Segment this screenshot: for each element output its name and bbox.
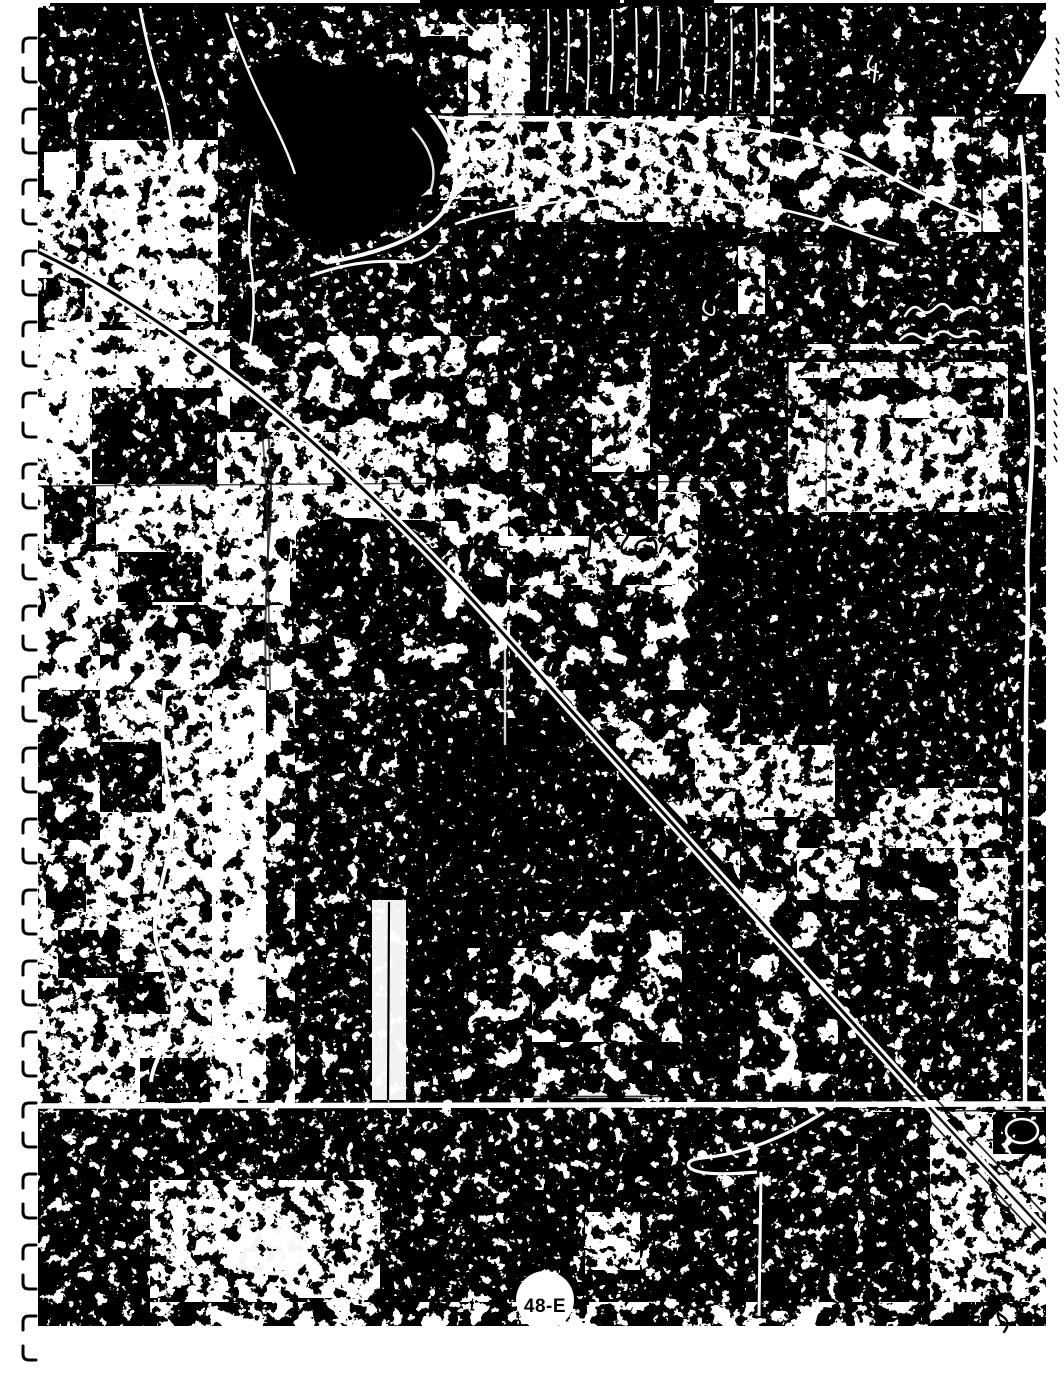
- svg-text:48-E: 48-E: [524, 1296, 566, 1317]
